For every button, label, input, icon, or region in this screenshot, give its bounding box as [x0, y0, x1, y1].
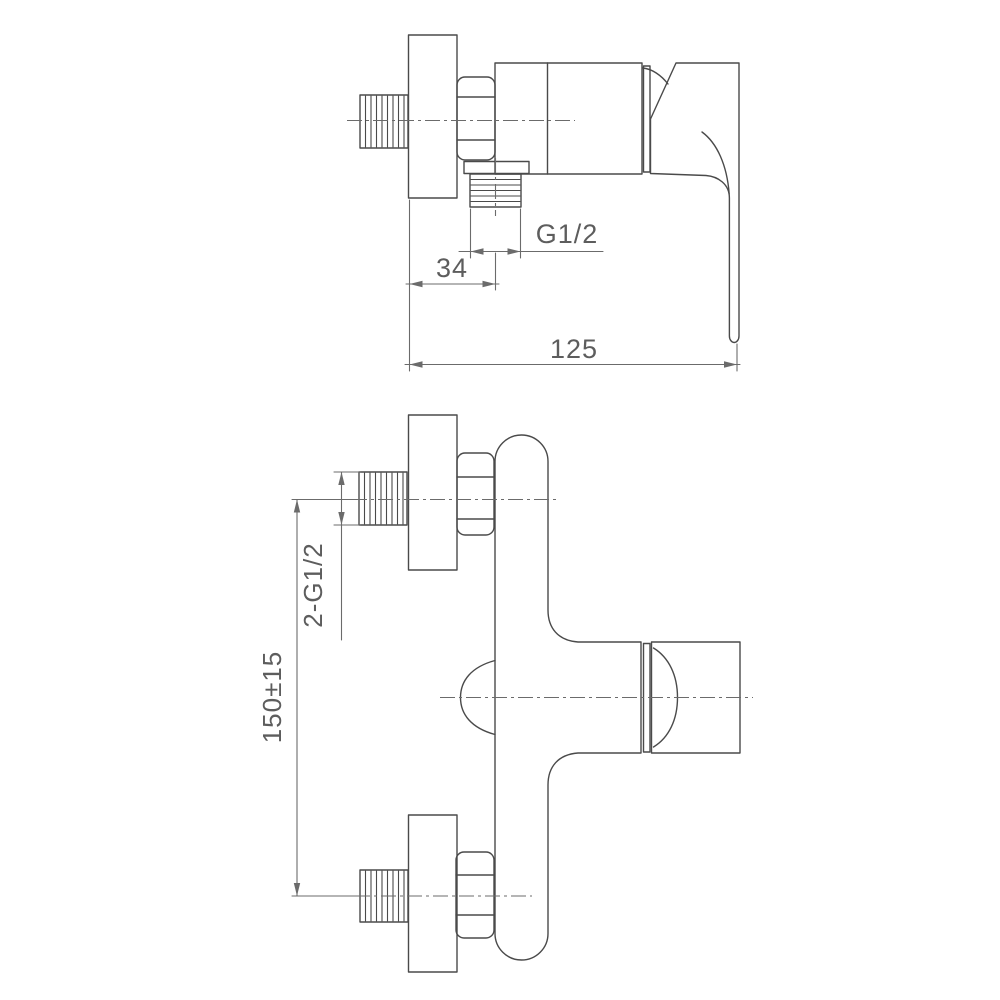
dim-label-wall-to-outlet: 34 [436, 253, 468, 283]
dim-label-inlet-spacing: 150±15 [257, 651, 287, 744]
drawing-sheet: G1/2 34 125 [0, 0, 1000, 1000]
dim-label-overall-depth: 125 [550, 334, 598, 364]
dim-label-inlet-threads: 2-G1/2 [298, 542, 328, 628]
dim-label-outlet-thread: G1/2 [536, 219, 599, 249]
technical-drawing: G1/2 34 125 [0, 0, 1000, 1000]
paper-background [0, 0, 1000, 1000]
